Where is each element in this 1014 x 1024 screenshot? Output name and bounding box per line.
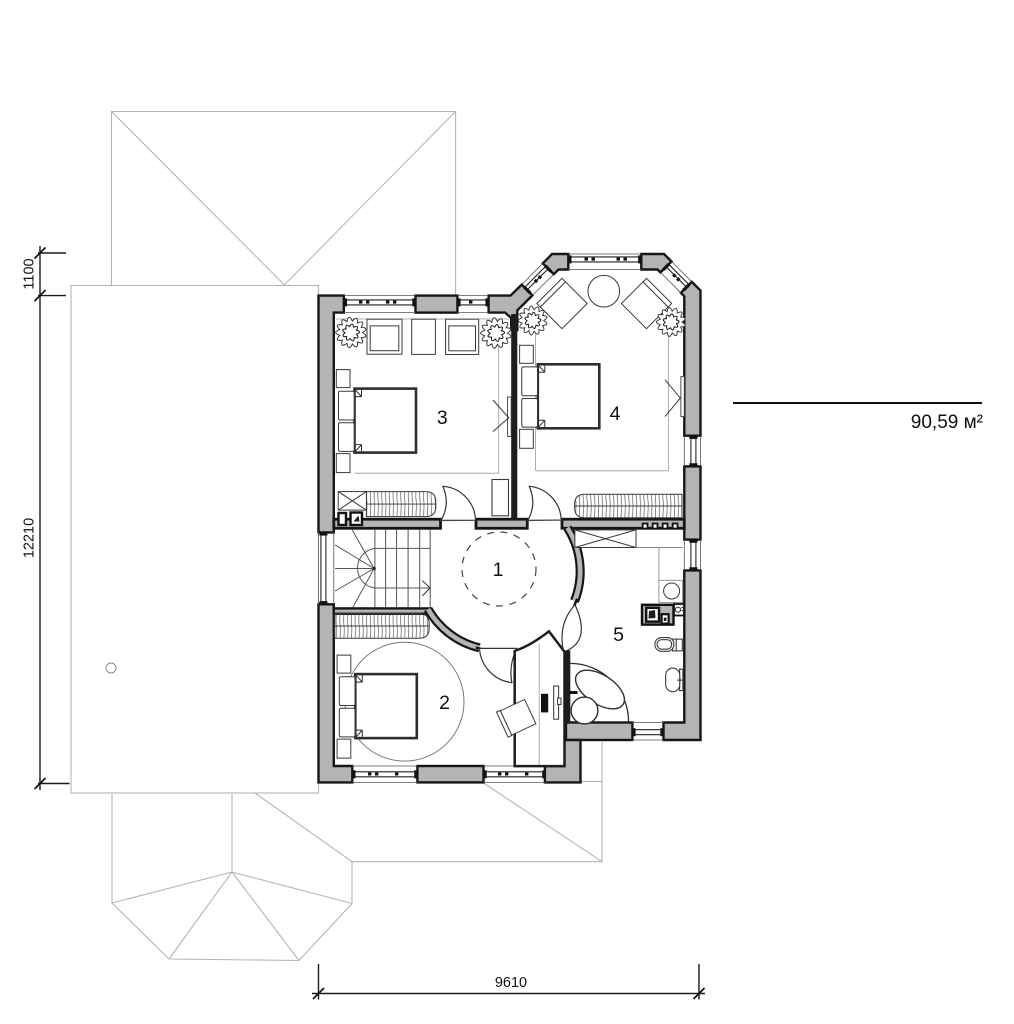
svg-text:2: 2: [439, 692, 450, 714]
svg-text:4: 4: [610, 403, 621, 425]
svg-text:1100: 1100: [22, 258, 38, 289]
svg-text:12210: 12210: [22, 518, 38, 558]
svg-text:1: 1: [493, 559, 504, 581]
svg-text:9610: 9610: [495, 975, 527, 991]
svg-text:3: 3: [437, 407, 448, 429]
svg-text:90,59 м²: 90,59 м²: [911, 412, 983, 433]
svg-text:5: 5: [613, 624, 624, 646]
